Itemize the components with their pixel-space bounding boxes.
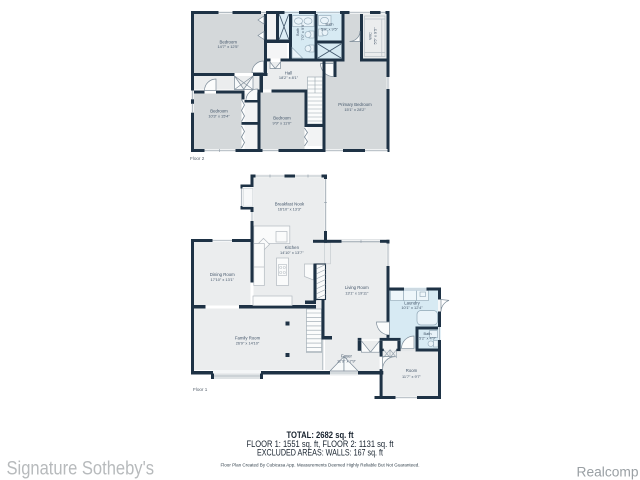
svg-text:14'7" x 12'5": 14'7" x 12'5" <box>218 44 240 49</box>
svg-text:Realcomp: Realcomp <box>577 465 639 480</box>
svg-text:16'10" x 13'3": 16'10" x 13'3" <box>278 207 302 212</box>
svg-text:5'5" x 9'5": 5'5" x 9'5" <box>373 27 378 45</box>
svg-text:Living Room: Living Room <box>345 285 369 290</box>
svg-text:26'9" x 14'10": 26'9" x 14'10" <box>236 341 260 346</box>
svg-text:Floor 2: Floor 2 <box>190 156 205 161</box>
svg-text:13'1" x 19'11": 13'1" x 19'11" <box>345 290 369 295</box>
svg-text:18'2" x 8'1": 18'2" x 8'1" <box>279 75 299 80</box>
svg-text:5'2" x 4'9": 5'2" x 4'9" <box>419 336 437 341</box>
svg-text:11'7" x 9'7": 11'7" x 9'7" <box>402 374 422 379</box>
svg-text:Signature Sotheby's: Signature Sotheby's <box>7 458 155 479</box>
svg-text:14'10" x 13'7": 14'10" x 13'7" <box>280 250 304 255</box>
svg-text:EXCLUDED AREAS: WALLS: 167 sq.: EXCLUDED AREAS: WALLS: 167 sq. ft <box>257 447 383 457</box>
svg-text:7'0" x 9'9": 7'0" x 9'9" <box>300 23 305 41</box>
svg-text:10'1" x 12'4": 10'1" x 12'4" <box>401 305 423 310</box>
svg-text:9'9" x 11'0": 9'9" x 11'0" <box>273 120 293 125</box>
svg-text:11'9" x 7'9": 11'9" x 7'9" <box>337 358 357 363</box>
svg-text:10'3" x 15'4": 10'3" x 15'4" <box>208 114 230 119</box>
svg-text:Floor Plan Created By Cubicasa: Floor Plan Created By Cubicasa App. Meas… <box>221 462 420 468</box>
svg-text:17'10" x 13'1": 17'10" x 13'1" <box>211 277 235 282</box>
svg-text:Room: Room <box>406 368 418 373</box>
svg-text:15'1" x 28'2": 15'1" x 28'2" <box>344 107 366 112</box>
svg-text:Floor 1: Floor 1 <box>193 387 208 392</box>
svg-text:5'9" x 9'5": 5'9" x 9'5" <box>321 27 339 32</box>
